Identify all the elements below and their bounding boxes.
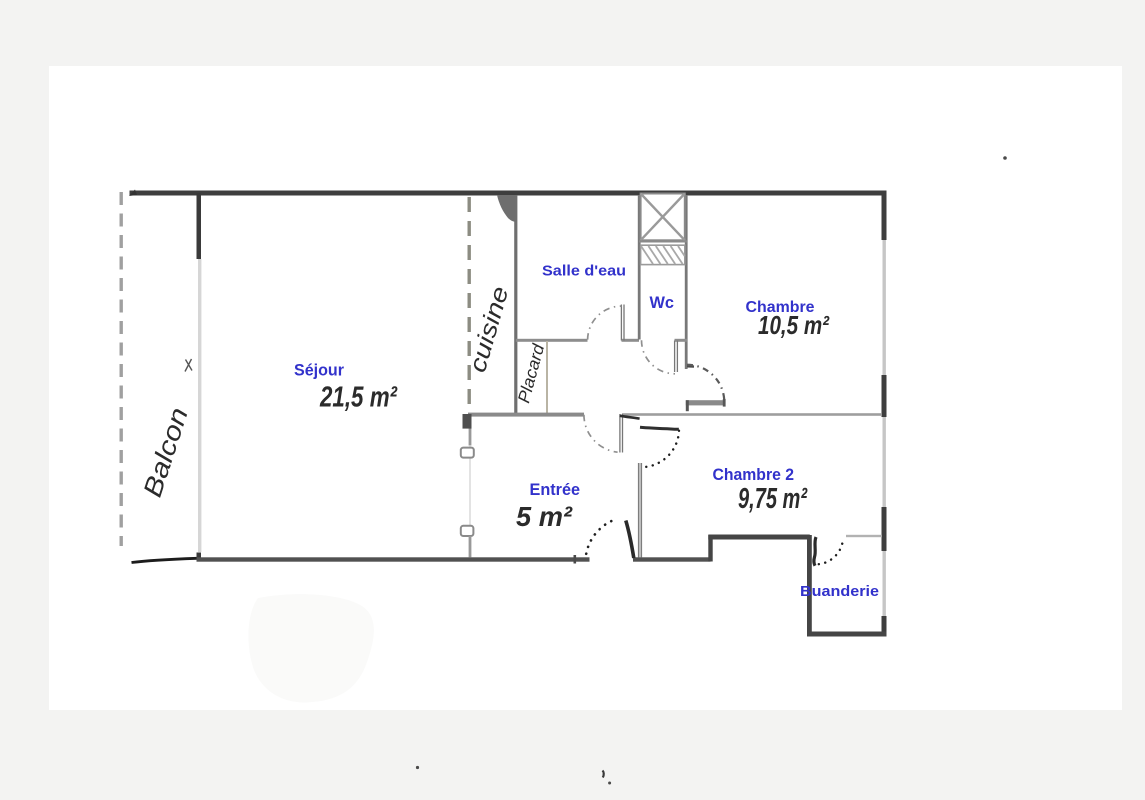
svg-text:10,5 m²: 10,5 m² bbox=[758, 310, 830, 340]
svg-text:9,75 m²: 9,75 m² bbox=[738, 483, 808, 515]
svg-text:Entrée: Entrée bbox=[530, 480, 581, 499]
svg-text:5 m²: 5 m² bbox=[516, 501, 573, 532]
svg-text:Buanderie: Buanderie bbox=[800, 583, 879, 600]
svg-text:Séjour: Séjour bbox=[294, 362, 345, 380]
svg-text:21,5 m²: 21,5 m² bbox=[319, 382, 398, 414]
svg-text:Wc: Wc bbox=[650, 294, 675, 312]
svg-text:Salle d'eau: Salle d'eau bbox=[542, 262, 626, 279]
svg-text:Chambre 2: Chambre 2 bbox=[713, 466, 795, 484]
